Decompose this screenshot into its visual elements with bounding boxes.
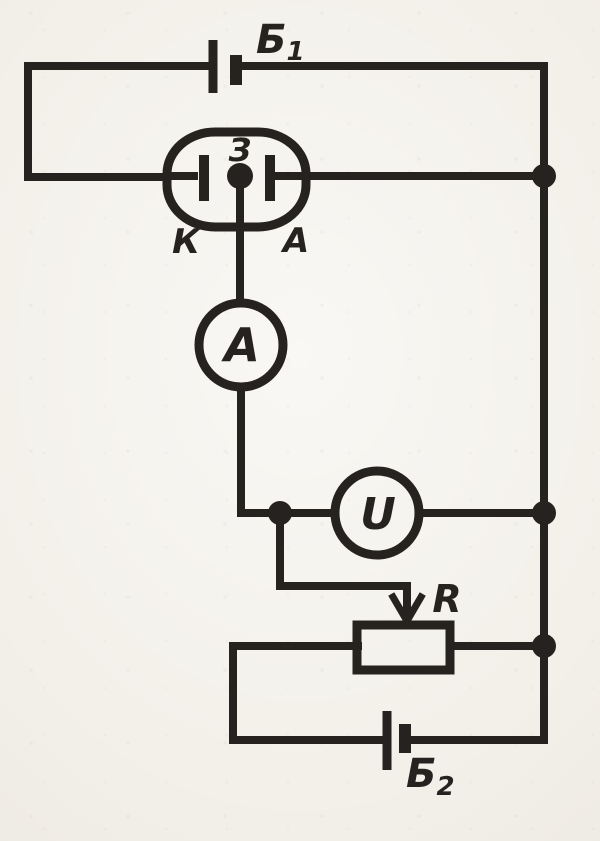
voltmeter: U bbox=[335, 471, 419, 555]
junction-dot-rheostat-rail bbox=[532, 634, 556, 658]
ammeter: A bbox=[199, 303, 283, 387]
wire-rheostat-left-and-bottom-left bbox=[233, 646, 385, 740]
voltmeter-label: U bbox=[360, 489, 396, 540]
battery-b2-label: Б2 bbox=[406, 751, 455, 802]
junction-dot-meter-branch bbox=[268, 501, 292, 525]
wire-top-left-and-cathode-lead bbox=[28, 66, 209, 177]
schematic-page: Б1 З К А A U R bbox=[0, 0, 600, 841]
rheostat-label: R bbox=[432, 577, 461, 621]
battery-b1: Б1 bbox=[213, 17, 305, 93]
tube-cathode-label: К bbox=[172, 222, 202, 262]
rheostat-body bbox=[357, 625, 450, 670]
tube-anode-label: А bbox=[280, 221, 309, 261]
wire-ammeter-to-voltmeter bbox=[241, 387, 335, 513]
battery-b1-label: Б1 bbox=[256, 17, 305, 67]
circuit-schematic: Б1 З К А A U R bbox=[0, 0, 600, 841]
junction-dot-anode-rail bbox=[532, 164, 556, 188]
tube-grid-label: З bbox=[228, 131, 252, 169]
battery-b2: Б2 bbox=[387, 711, 455, 802]
junction-dot-voltmeter-rail bbox=[532, 501, 556, 525]
ammeter-label: A bbox=[221, 318, 260, 372]
wire-top-right-and-right-rail bbox=[240, 66, 544, 740]
